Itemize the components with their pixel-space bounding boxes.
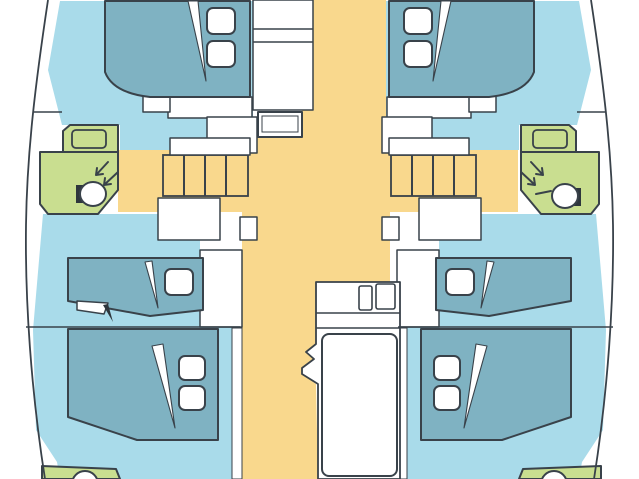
storage-right <box>397 250 439 327</box>
storage-left <box>200 250 242 327</box>
pillow <box>404 8 432 34</box>
bed-aft-right <box>421 329 571 440</box>
toilet-icon <box>552 184 578 208</box>
cabin-aft-left <box>68 329 218 440</box>
floor-plan-page <box>0 0 639 479</box>
bed-aft-left <box>68 329 218 440</box>
cabin-mid-left <box>68 258 203 322</box>
corridor-step-left <box>240 217 257 240</box>
corridor-step-right <box>382 217 399 240</box>
staircase-right <box>391 155 476 196</box>
staircase-left <box>163 155 248 196</box>
pillow <box>434 386 460 410</box>
head-aft-right <box>519 466 601 479</box>
sink-icon <box>533 130 567 148</box>
pillow <box>207 8 235 34</box>
passage-sliver-left <box>232 328 242 479</box>
head-aft-left <box>42 466 120 479</box>
berth-step-right <box>387 97 471 118</box>
stair-landing-right <box>419 198 481 240</box>
sink-icon <box>72 130 106 148</box>
shelf-left <box>170 138 250 155</box>
pillow <box>179 356 205 380</box>
cabin-forward-left <box>105 1 250 97</box>
cabin-aft-right <box>421 329 571 440</box>
forward-berth-frame <box>253 0 313 110</box>
head-forward-left <box>40 125 118 214</box>
pillow <box>165 269 193 295</box>
toilet-icon <box>80 182 106 206</box>
stair-landing-left <box>158 198 220 240</box>
galley-sink-small <box>359 286 372 310</box>
pillow <box>207 41 235 67</box>
pillow <box>404 41 432 67</box>
head-forward-right <box>521 125 599 214</box>
cabin-forward-right <box>389 1 534 97</box>
galley-sink-large <box>376 284 395 309</box>
pillow <box>446 269 474 295</box>
pillow <box>179 386 205 410</box>
catamaran-floor-plan <box>0 0 639 479</box>
galley-unit <box>322 334 397 476</box>
companionway-step-inner <box>262 116 298 132</box>
berth-step-left <box>168 97 252 118</box>
shelf-right <box>389 138 469 155</box>
pillow <box>434 356 460 380</box>
